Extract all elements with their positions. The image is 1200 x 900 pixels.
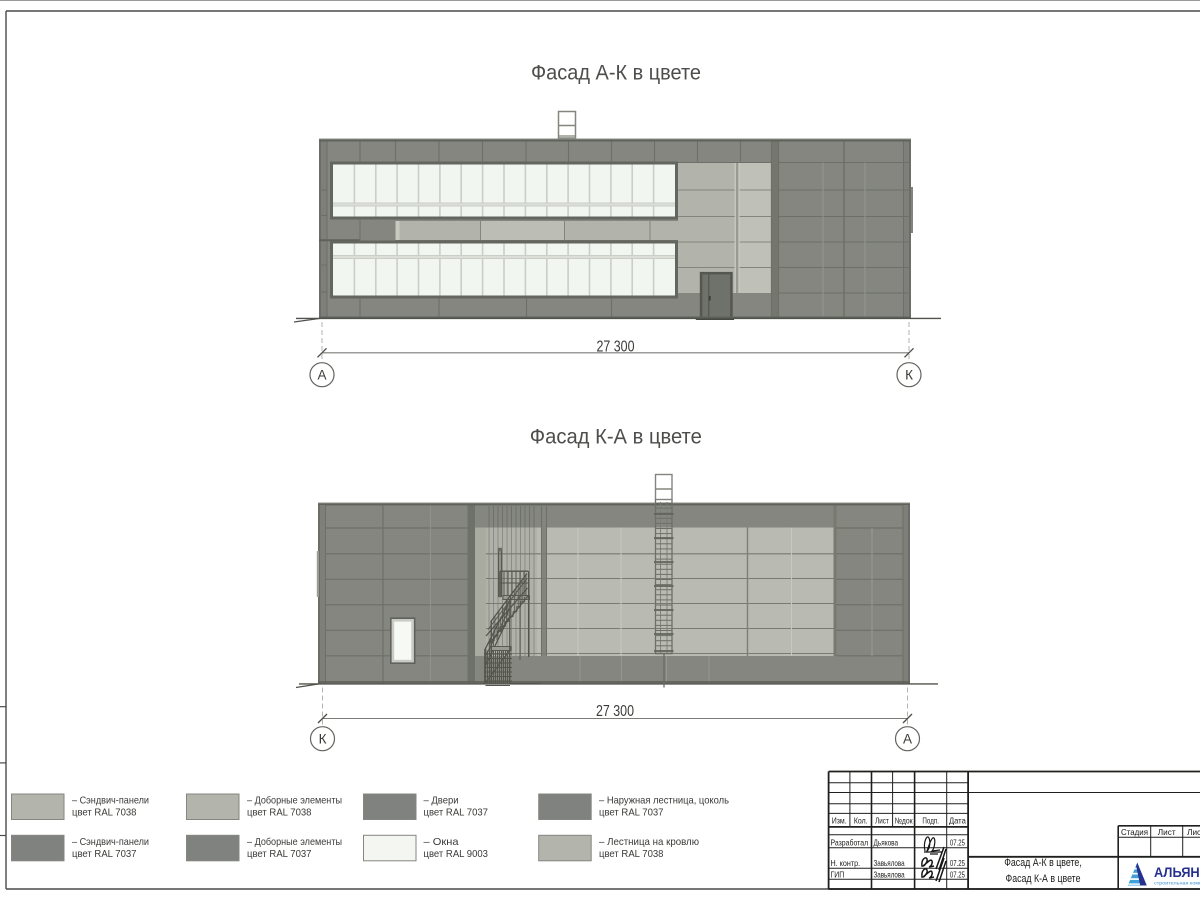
svg-text:цвет RAL 7037: цвет RAL 7037 [247, 848, 312, 860]
svg-text:цвет RAL 7038: цвет RAL 7038 [72, 807, 137, 819]
svg-text:07.25: 07.25 [950, 837, 965, 847]
svg-text:Дата: Дата [949, 815, 966, 825]
svg-text:Лист: Лист [875, 815, 889, 825]
svg-text:цвет RAL 7038: цвет RAL 7038 [599, 848, 664, 860]
svg-text:цвет RAL 7038: цвет RAL 7038 [247, 807, 312, 819]
svg-text:Завьялова: Завьялова [874, 869, 905, 879]
svg-text:цвет RAL 9003: цвет RAL 9003 [424, 848, 489, 860]
svg-text:27 300: 27 300 [596, 703, 634, 720]
svg-text:К: К [905, 368, 913, 383]
svg-text:Фасад А-К в цвете: Фасад А-К в цвете [531, 62, 701, 85]
svg-text:Лист: Лист [1187, 827, 1200, 837]
svg-text:Фасад К-А в цвете: Фасад К-А в цвете [530, 426, 702, 449]
svg-text:Лист: Лист [1158, 827, 1176, 837]
svg-text:ГИП: ГИП [831, 869, 845, 879]
svg-text:№док: №док [895, 815, 913, 825]
svg-text:Фасад А-К в цвете,: Фасад А-К в цвете, [1004, 857, 1082, 869]
svg-text:А: А [317, 368, 326, 383]
svg-text:Изм.: Изм. [832, 815, 847, 825]
svg-text:Дьякова: Дьякова [874, 837, 899, 847]
svg-text:– Сэндвич-панели: – Сэндвич-панели [72, 795, 149, 807]
svg-text:07.25: 07.25 [950, 858, 965, 868]
svg-text:А: А [903, 732, 912, 747]
svg-text:строительная компания: строительная компания [1154, 880, 1200, 885]
svg-text:цвет RAL 7037: цвет RAL 7037 [72, 848, 137, 860]
svg-text:Подп.: Подп. [922, 815, 939, 825]
svg-text:Разработал: Разработал [831, 837, 869, 847]
svg-text:– Двери: – Двери [424, 795, 459, 807]
svg-text:цвет RAL 7037: цвет RAL 7037 [599, 807, 664, 819]
svg-text:– Доборные элементы: – Доборные элементы [247, 795, 342, 807]
svg-text:цвет RAL 7037: цвет RAL 7037 [424, 807, 489, 819]
svg-text:Н. контр.: Н. контр. [831, 858, 861, 868]
svg-text:– Окна: – Окна [424, 836, 459, 848]
svg-text:Завьялова: Завьялова [874, 858, 905, 868]
svg-text:Стадия: Стадия [1121, 827, 1148, 837]
svg-text:Фасад К-А в цвете: Фасад К-А в цвете [1006, 873, 1081, 885]
svg-text:К: К [319, 732, 327, 747]
svg-text:– Лестница на кровлю: – Лестница на кровлю [599, 836, 699, 848]
svg-text:АЛЬЯНС: АЛЬЯНС [1154, 865, 1200, 880]
svg-text:– Доборные элементы: – Доборные элементы [247, 836, 342, 848]
svg-text:27 300: 27 300 [597, 338, 635, 355]
svg-text:07.25: 07.25 [950, 869, 965, 879]
svg-text:Кол.: Кол. [854, 815, 868, 825]
svg-text:– Сэндвич-панели: – Сэндвич-панели [72, 836, 149, 848]
svg-text:– Наружная лестница, цоколь: – Наружная лестница, цоколь [599, 795, 729, 807]
